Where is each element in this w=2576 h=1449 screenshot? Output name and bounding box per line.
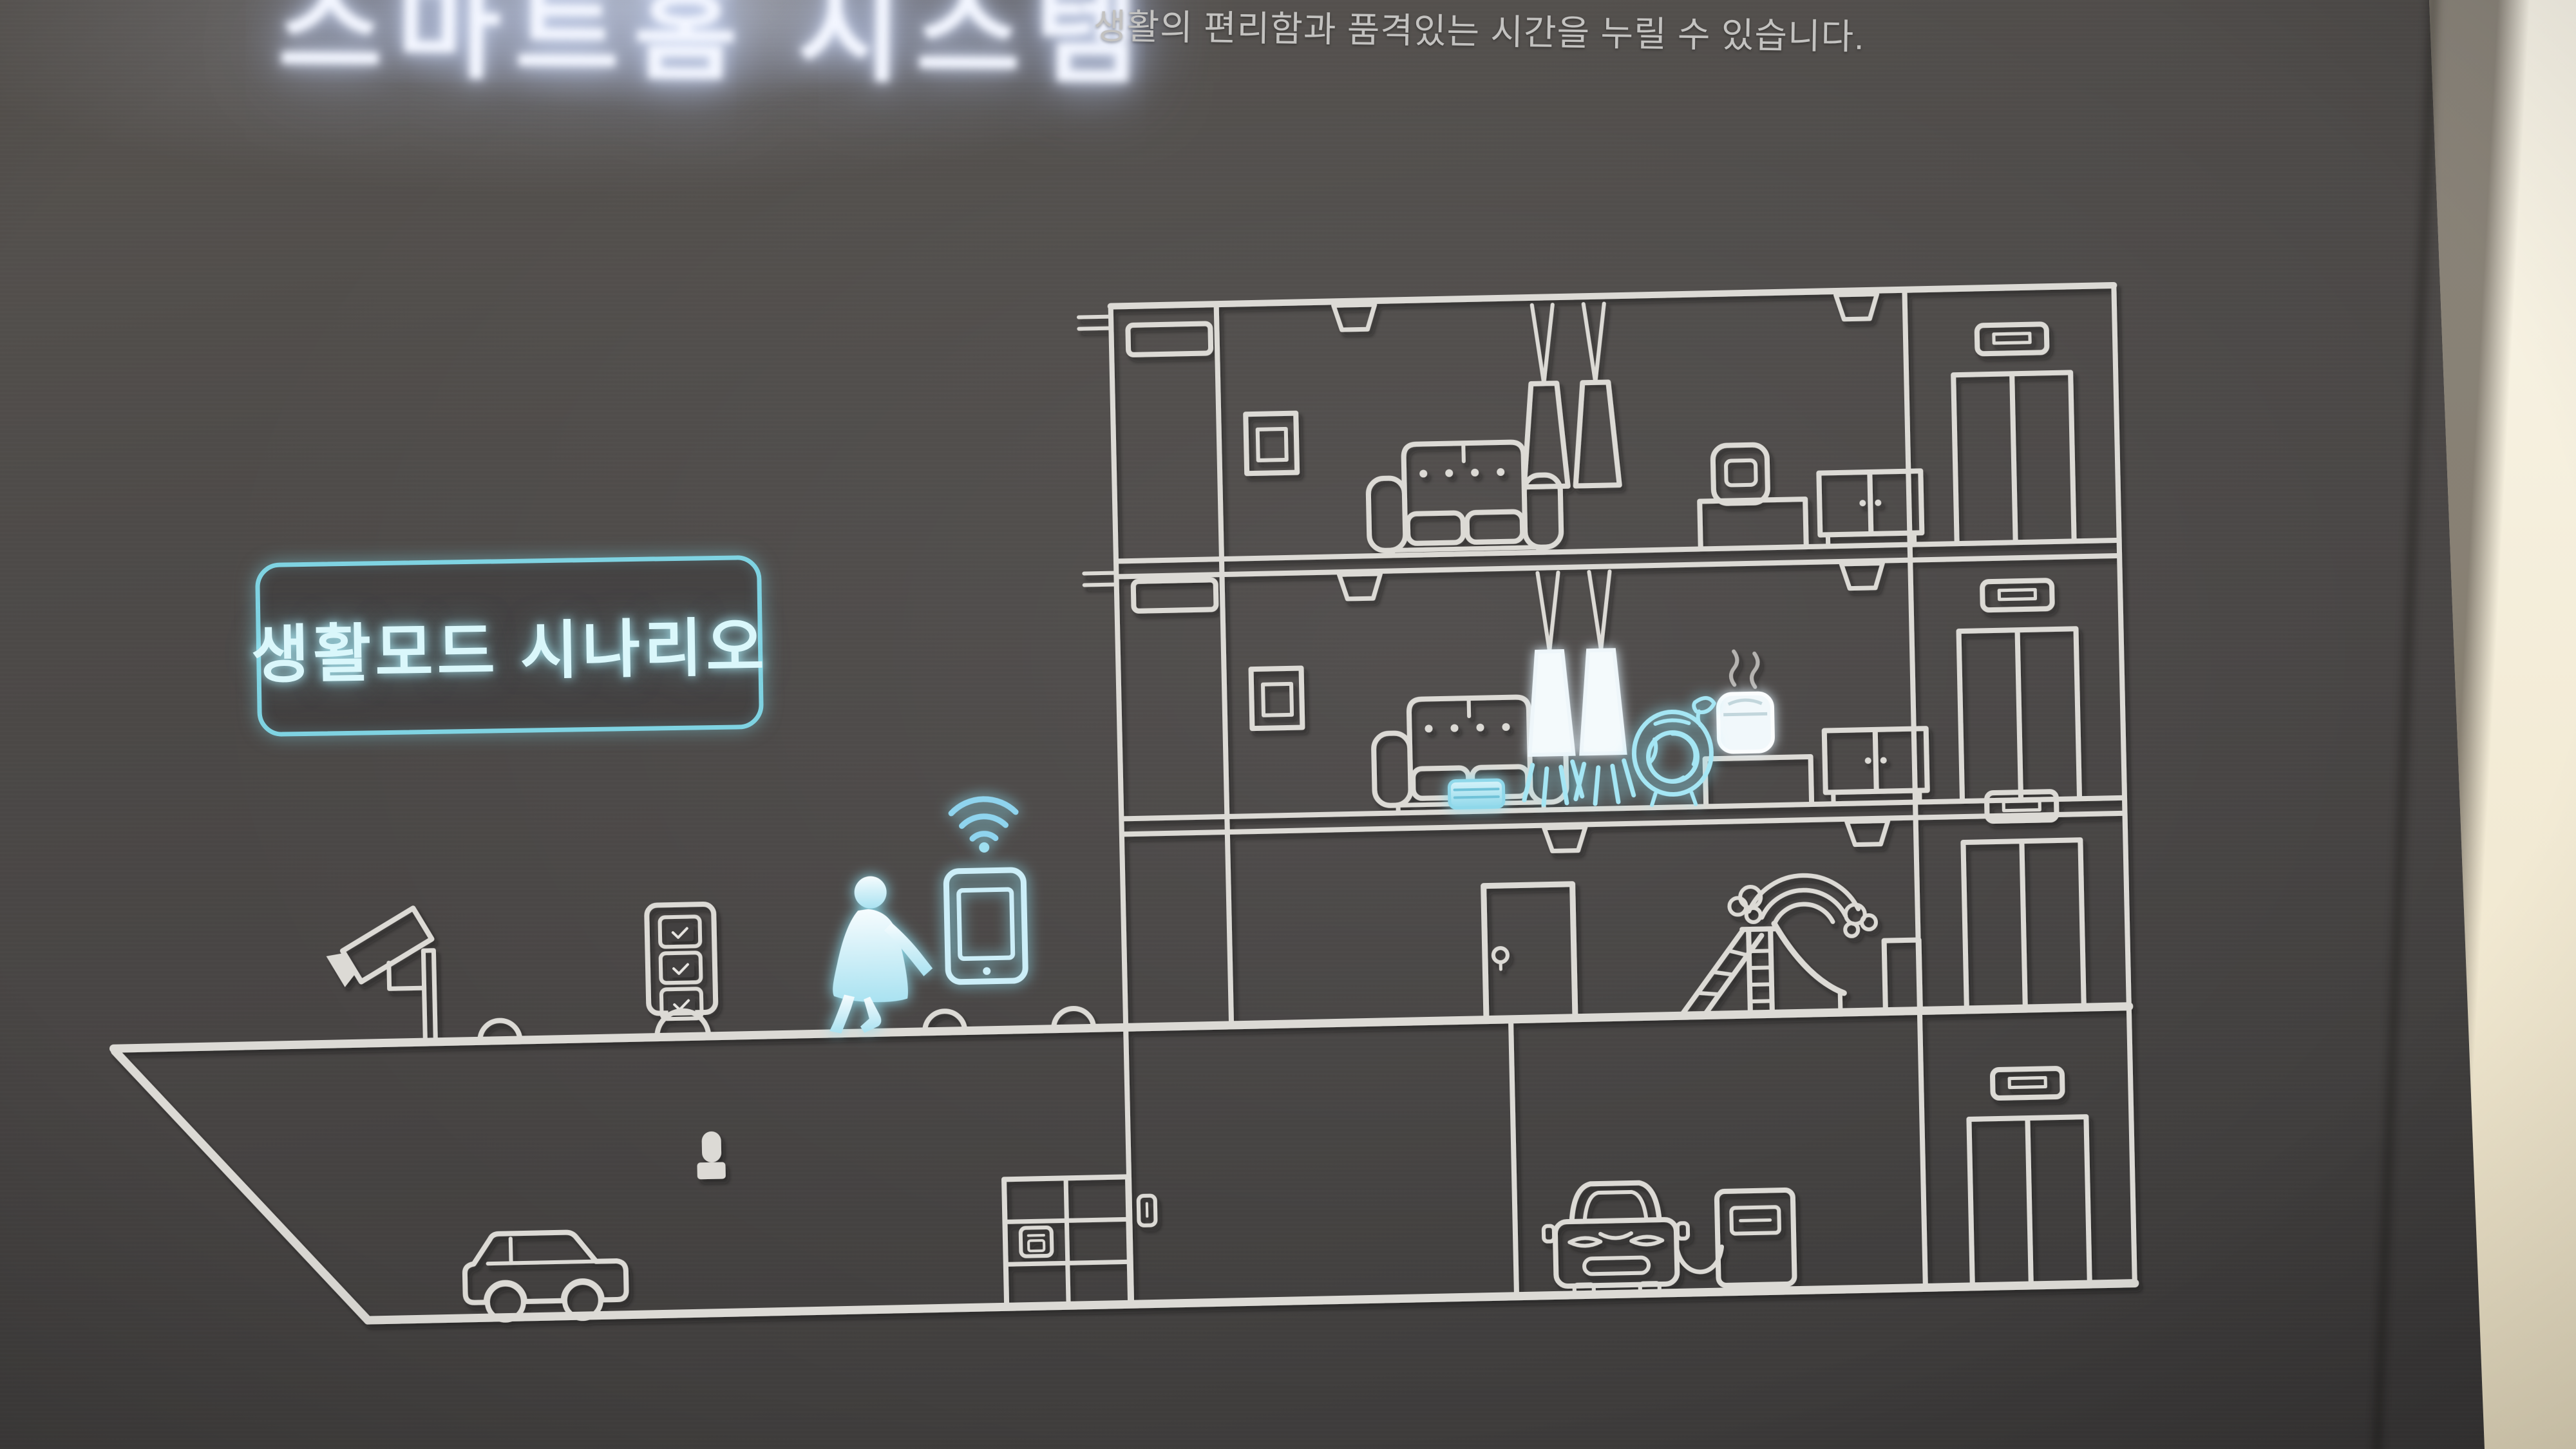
- elevator-basement-icon: [1968, 1068, 2090, 1285]
- wall-tv-upper-icon: [1245, 413, 1297, 474]
- smartphone-icon: [946, 870, 1026, 982]
- access-kiosk-icon: [647, 904, 716, 1019]
- parcel-locker-icon: [1004, 1176, 1157, 1307]
- parking-car-icon: [464, 1231, 627, 1321]
- playground-slide-icon: [1680, 922, 1844, 1014]
- elevator-upper-icon: [1953, 323, 2074, 544]
- signage-panel: 스마트홈 시스템 생활의 편리함과 품격있는 시간을 누릴 수 있습니다. 생활…: [0, 0, 2576, 1449]
- garden-bench-icon: [1884, 940, 1920, 1010]
- sofa-upper-icon: [1367, 441, 1562, 556]
- pendant-cords-middle-icon: [1537, 571, 1611, 651]
- cooker-stand-middle-icon: [1705, 757, 1812, 806]
- cooker-steam-icon: [1730, 651, 1758, 688]
- wall-tv-middle-icon: [1251, 668, 1303, 729]
- rice-cooker-upper-icon: [1698, 444, 1806, 549]
- walking-person-icon: [826, 875, 934, 1034]
- cctv-camera-icon: [325, 904, 435, 1043]
- entrance-door-icon: [1484, 884, 1575, 1019]
- ev-charger-icon: [1676, 1190, 1795, 1287]
- robot-vacuum-icon: [1449, 780, 1504, 808]
- elevator-ground-icon: [1962, 791, 2084, 1009]
- elevator-middle-icon: [1958, 580, 2079, 801]
- pendant-lights-upper-icon: [1520, 303, 1620, 487]
- ev-car-icon: [1542, 1182, 1689, 1294]
- building-cross-section-diagram: [0, 0, 2576, 1449]
- building-structure: [99, 285, 2135, 1325]
- pendant-lights-middle-icon: [1528, 650, 1625, 755]
- rice-cooker-middle-icon: [1718, 693, 1773, 752]
- wifi-icon: [951, 799, 1017, 853]
- wall-sensor-icon: [696, 1131, 726, 1179]
